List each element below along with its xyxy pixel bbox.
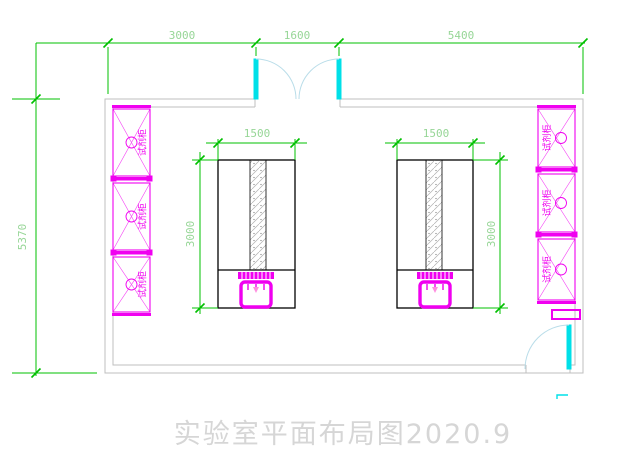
sink-grate-icon (417, 272, 453, 279)
cabinet-end-cap (537, 301, 576, 304)
divider-end-block (536, 232, 542, 238)
cabinet-divider (537, 233, 576, 237)
cabinet-column-right: 试剂柜 试剂柜 试剂柜 (536, 105, 581, 319)
wall-outer-line (105, 99, 583, 373)
cabinet-label: 试剂柜 (137, 203, 149, 230)
dimension-value: 3000 (485, 221, 498, 248)
door-bottom-right (525, 325, 571, 399)
cabinet-column-left: 试剂柜 试剂柜 试剂柜 (111, 105, 153, 316)
dimension-left: 5370 (12, 43, 97, 378)
cabinet-knob-icon (556, 264, 567, 275)
reagent-shelf-strip (426, 160, 442, 270)
door-jamb-lines (255, 99, 570, 373)
dimension-value: 5370 (16, 224, 29, 251)
wall-inner-line (113, 107, 575, 365)
cabinet-unit: 试剂柜 (113, 257, 150, 312)
extension-lines (218, 139, 295, 160)
cabinet-unit: 试剂柜 (538, 239, 575, 300)
divider-end-block (111, 250, 117, 256)
cabinet-end-cap (112, 313, 151, 316)
dimension-value: 1600 (284, 29, 311, 42)
floor-plan-drawing: 试剂柜 试剂柜 试剂柜 试剂柜 (0, 0, 619, 469)
sink-grate-icon (238, 272, 274, 279)
divider-end-block (147, 250, 153, 256)
cabinet-divider (112, 251, 151, 255)
dimension-bench-right-width: 1500 (385, 127, 485, 160)
door-swing-arc (256, 59, 296, 99)
cabinet-divider (112, 177, 151, 181)
dimension-value: 1500 (423, 127, 450, 140)
divider-end-block (147, 176, 153, 182)
cabinet-unit: 试剂柜 (538, 109, 575, 167)
cabinet-label: 试剂柜 (137, 271, 149, 298)
dimension-bench-right-depth: 3000 (473, 152, 508, 314)
extension-lines (108, 47, 583, 94)
cabinet-unit: 试剂柜 (538, 174, 575, 232)
drawing-title: 实验室平面布局图2020.9 (174, 419, 512, 450)
dimension-top: 3000 1600 5400 (36, 29, 588, 94)
divider-end-block (536, 167, 542, 173)
dimension-value: 3000 (184, 221, 197, 248)
cabinet-knob-icon (556, 198, 567, 209)
lab-bench-right (397, 160, 473, 308)
divider-end-block (111, 176, 117, 182)
divider-end-block (572, 232, 578, 238)
reagent-shelf-strip (250, 160, 266, 270)
cabinet-divider (537, 168, 576, 172)
walls (105, 99, 583, 373)
cabinet-unit: 试剂柜 (113, 109, 150, 176)
dimension-bench-left-width: 1500 (206, 127, 307, 160)
door-swing-arc (525, 325, 569, 369)
divider-end-block (572, 167, 578, 173)
dimension-value: 3000 (169, 29, 196, 42)
sink-symbol (417, 272, 453, 307)
cabinet-label: 试剂柜 (541, 124, 553, 151)
double-door-top (254, 59, 341, 99)
cabinet-end-bracket (552, 310, 580, 319)
lab-bench-left (218, 160, 295, 308)
cad-canvas: 试剂柜 试剂柜 试剂柜 试剂柜 (0, 0, 619, 469)
cabinet-label: 试剂柜 (541, 189, 553, 216)
door-leaf-icon (254, 59, 258, 99)
sink-symbol (238, 272, 274, 307)
cabinet-knob-icon (556, 133, 567, 144)
door-swing-arc (299, 59, 339, 99)
door-leaf-icon (567, 325, 571, 369)
cabinet-label: 试剂柜 (541, 256, 553, 283)
cabinet-label: 试剂柜 (137, 129, 149, 156)
door-threshold-mark (557, 395, 568, 399)
door-leaf-icon (337, 59, 341, 99)
dimension-bench-left-depth: 3000 (184, 152, 218, 314)
extension-lines (397, 139, 473, 160)
dimension-value: 5400 (448, 29, 475, 42)
cabinet-unit: 试剂柜 (113, 183, 150, 250)
dimension-value: 1500 (244, 127, 271, 140)
cabinet-end-cap (537, 105, 576, 108)
cabinet-end-cap (112, 105, 151, 108)
